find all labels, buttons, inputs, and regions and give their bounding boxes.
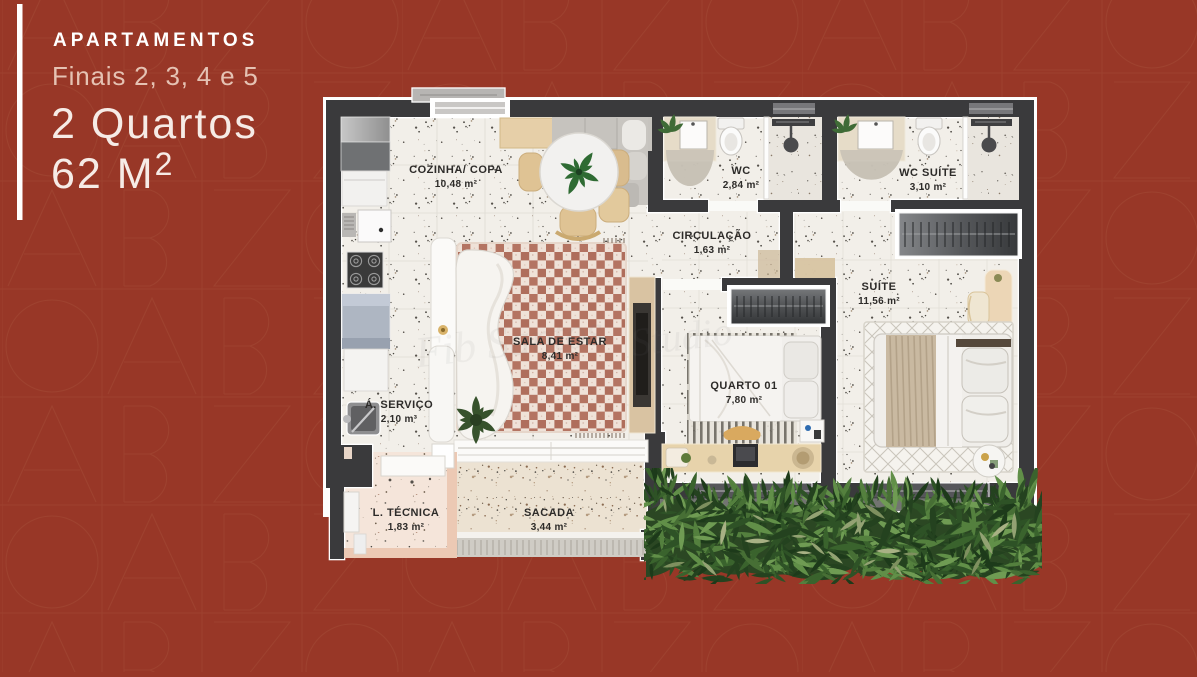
svg-text:APARTAMENTOS: APARTAMENTOS [53,30,258,51]
svg-text:L. TÉCNICA: L. TÉCNICA [373,506,440,519]
svg-text:Finais 2, 3, 4 e 5: Finais 2, 3, 4 e 5 [52,61,259,91]
svg-text:2,84 m²: 2,84 m² [723,180,760,191]
svg-text:CIRCULAÇÃO: CIRCULAÇÃO [673,229,752,242]
svg-text:WC SUÍTE: WC SUÍTE [899,166,957,179]
svg-text:1,63 m²: 1,63 m² [694,245,731,256]
svg-text:2 Quartos: 2 Quartos [51,100,258,148]
svg-text:Á. SERVIÇO: Á. SERVIÇO [365,398,433,411]
svg-text:SALA DE ESTAR: SALA DE ESTAR [513,336,607,348]
svg-text:COZINHA/ COPA: COZINHA/ COPA [409,164,503,176]
svg-text:3,10 m²: 3,10 m² [910,182,947,193]
svg-text:QUARTO 01: QUARTO 01 [710,380,777,392]
svg-text:2,10 m³: 2,10 m³ [381,414,418,425]
svg-text:SACADA: SACADA [524,507,574,519]
svg-text:WC: WC [731,165,750,177]
svg-text:10,48 m²: 10,48 m² [435,179,478,190]
svg-text:1,83 m²: 1,83 m² [388,522,425,533]
svg-text:3,44 m²: 3,44 m² [531,522,568,533]
svg-text:8,41 m²: 8,41 m² [542,351,579,362]
svg-text:7,80 m²: 7,80 m² [726,395,763,406]
svg-text:SUÍTE: SUÍTE [862,280,897,293]
svg-text:11,56 m²: 11,56 m² [858,296,900,307]
